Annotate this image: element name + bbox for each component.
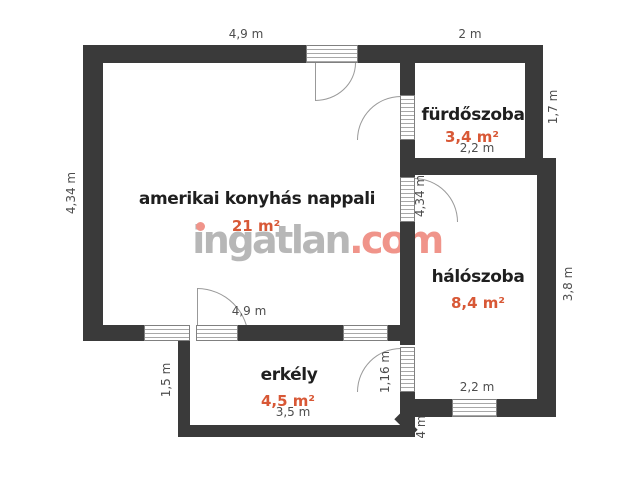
bathroom-door-arc [357, 96, 401, 140]
wall-bedroom-right [537, 158, 556, 417]
dim-bedroom-right: 3,8 m [561, 267, 575, 302]
wall-bedroom-bottom-a [400, 399, 452, 417]
wall-top-right [358, 45, 543, 63]
watermark-i-dot [196, 222, 205, 231]
floor-plan: ingatlan.com amerikai konyhás nappali 21… [0, 0, 640, 480]
balcony-label: erkély [261, 365, 318, 385]
wall-top-left [83, 45, 306, 63]
bedroom-area: 8,4 m² [451, 294, 505, 312]
dim-living-left: 4,34 m [64, 172, 78, 214]
bathroom-label: fürdőszoba [421, 105, 524, 125]
dim-bathroom-right: 1,7 m [546, 90, 560, 125]
bedroom-label: hálószoba [432, 267, 525, 287]
dim-balcony-door: 1,16 m [378, 351, 392, 393]
bedroom-window [452, 399, 497, 417]
living-room-area: 21 m² [232, 217, 280, 235]
entrance-door-leaf [306, 45, 358, 63]
wall-center-3 [400, 222, 415, 345]
dim-living-top: 4,9 m [229, 27, 264, 41]
dim-bedroom-width: 2,2 m [460, 380, 495, 394]
bedroom-balcony-door-leaf [400, 347, 415, 392]
dim-living-bottom: 4,9 m [232, 304, 267, 318]
wall-bathroom-right [525, 45, 543, 175]
wall-balcony-bottom [178, 425, 415, 437]
wall-living-bottom-a [83, 325, 146, 341]
balcony-window [144, 325, 190, 341]
wall-living-bottom-b [238, 325, 343, 341]
wall-bedroom-bottom-b [497, 399, 556, 417]
wall-balcony-left [178, 340, 190, 437]
wall-left [83, 45, 103, 341]
watermark-suffix: .com [349, 218, 442, 262]
dim-balcony-left: 1,5 m [159, 363, 173, 398]
bathroom-door-leaf [400, 95, 415, 140]
living-room-label: amerikai konyhás nappali [139, 189, 375, 209]
bedroom-door-leaf [400, 177, 415, 222]
balcony-area: 4,5 m² [261, 392, 315, 410]
balcony-door-leaf [196, 325, 238, 341]
dim-bathroom-top: 2 m [458, 27, 481, 41]
living-window [343, 325, 388, 341]
bathroom-area: 3,4 m² [445, 128, 499, 146]
wall-center-1 [400, 63, 415, 95]
entrance-door-arc [315, 63, 356, 101]
dim-corner-partial: 4 m [414, 415, 428, 438]
dim-bedroom-door: 4,34 m [413, 175, 427, 217]
